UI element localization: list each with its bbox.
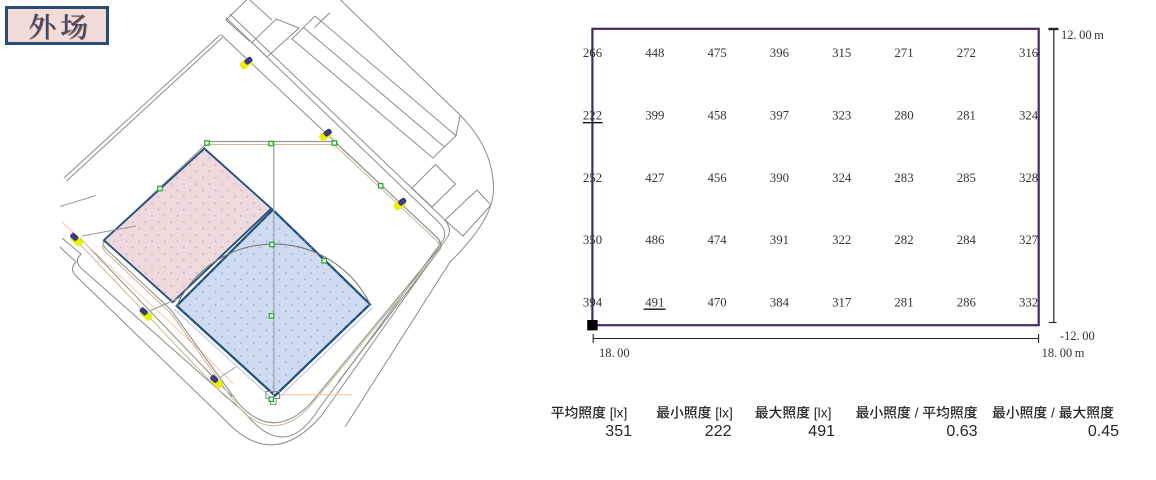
- svg-text:332: 332: [1019, 295, 1038, 309]
- svg-text:280: 280: [894, 108, 913, 122]
- svg-text:328: 328: [1019, 171, 1038, 185]
- svg-text:-12. 00: -12. 00: [1060, 329, 1095, 343]
- svg-text:286: 286: [957, 295, 977, 309]
- svg-text:266: 266: [583, 46, 603, 60]
- svg-text:[lx]: [lx]: [814, 406, 832, 421]
- svg-text:[lx]: [lx]: [715, 406, 733, 421]
- svg-text:475: 475: [707, 46, 726, 60]
- svg-text:[lx]: [lx]: [610, 406, 628, 421]
- svg-text:/: /: [915, 406, 919, 421]
- svg-text:351: 351: [605, 423, 632, 440]
- svg-text:0.45: 0.45: [1088, 423, 1119, 440]
- svg-text:252: 252: [583, 171, 602, 185]
- svg-text:285: 285: [957, 171, 976, 185]
- svg-text:448: 448: [645, 46, 664, 60]
- svg-text:281: 281: [894, 295, 913, 309]
- svg-text:222: 222: [705, 423, 732, 440]
- svg-text:390: 390: [770, 171, 789, 185]
- svg-text:322: 322: [832, 233, 851, 247]
- svg-text:284: 284: [957, 233, 977, 247]
- svg-text:0.63: 0.63: [946, 423, 977, 440]
- svg-text:396: 396: [770, 46, 790, 60]
- svg-text:399: 399: [645, 108, 664, 122]
- svg-text:18. 00 m: 18. 00 m: [1042, 346, 1085, 360]
- svg-text:283: 283: [894, 171, 913, 185]
- svg-text:281: 281: [957, 108, 976, 122]
- svg-text:474: 474: [707, 233, 727, 247]
- svg-text:18. 00: 18. 00: [599, 346, 630, 360]
- svg-text:486: 486: [645, 233, 665, 247]
- svg-text:384: 384: [770, 295, 790, 309]
- svg-text:397: 397: [770, 108, 790, 122]
- svg-text:427: 427: [645, 171, 665, 185]
- svg-text:323: 323: [832, 108, 851, 122]
- svg-text:/: /: [1051, 406, 1055, 421]
- svg-text:391: 391: [770, 233, 789, 247]
- svg-text:324: 324: [1019, 108, 1039, 122]
- svg-text:271: 271: [894, 46, 913, 60]
- svg-text:272: 272: [957, 46, 976, 60]
- svg-text:327: 327: [1019, 233, 1039, 247]
- svg-text:470: 470: [707, 295, 726, 309]
- svg-text:315: 315: [832, 46, 851, 60]
- svg-text:282: 282: [894, 233, 913, 247]
- svg-text:394: 394: [583, 295, 603, 309]
- svg-text:491: 491: [808, 423, 835, 440]
- svg-text:350: 350: [583, 233, 602, 247]
- svg-text:324: 324: [832, 171, 852, 185]
- svg-text:491: 491: [645, 295, 664, 309]
- svg-text:222: 222: [583, 108, 602, 122]
- svg-text:458: 458: [707, 108, 726, 122]
- svg-text:12. 00 m: 12. 00 m: [1061, 28, 1104, 42]
- svg-text:316: 316: [1019, 46, 1039, 60]
- svg-text:456: 456: [707, 171, 727, 185]
- svg-text:317: 317: [832, 295, 852, 309]
